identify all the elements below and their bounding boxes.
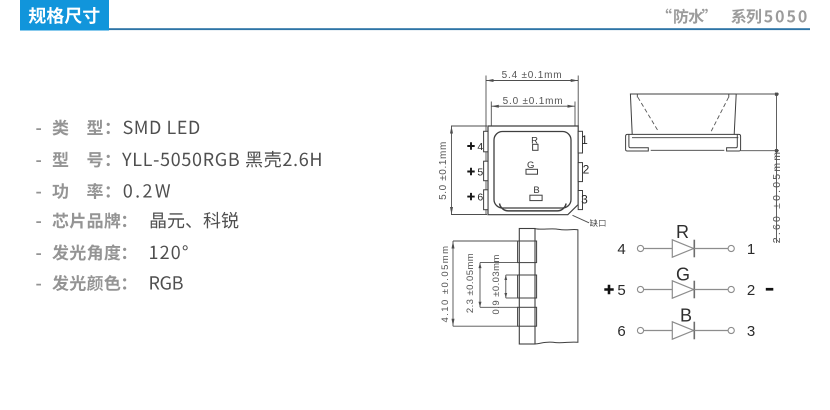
svg-text:6: 6 xyxy=(477,192,483,204)
svg-text:4: 4 xyxy=(617,241,625,258)
svg-text:3: 3 xyxy=(581,192,588,206)
svg-text:2: 2 xyxy=(583,163,590,177)
svg-text:1: 1 xyxy=(747,241,755,258)
svg-text:5: 5 xyxy=(617,282,625,299)
svg-text:5.0 ±0.1mm: 5.0 ±0.1mm xyxy=(503,96,564,107)
svg-text:4: 4 xyxy=(477,141,483,153)
svg-text:4.10 ±0.05mm: 4.10 ±0.05mm xyxy=(440,244,451,322)
svg-text:G: G xyxy=(676,265,690,285)
svg-text:3: 3 xyxy=(747,323,755,340)
svg-text:B: B xyxy=(533,185,539,196)
svg-text:B: B xyxy=(680,306,692,326)
svg-text:5: 5 xyxy=(477,167,483,179)
svg-text:R: R xyxy=(676,222,689,242)
svg-text:5.4 ±0.1mm: 5.4 ±0.1mm xyxy=(502,70,563,81)
svg-text:2.3 ±0.05mm: 2.3 ±0.05mm xyxy=(465,253,476,313)
svg-text:1: 1 xyxy=(581,133,588,147)
svg-text:2.60 ±0.05mm: 2.60 ±0.05mm xyxy=(771,150,783,243)
svg-text:6: 6 xyxy=(617,323,625,340)
svg-text:2: 2 xyxy=(747,282,755,299)
svg-text:5.0 ±0.1mm: 5.0 ±0.1mm xyxy=(438,141,449,200)
svg-text:0.9 ±0.03mm: 0.9 ±0.03mm xyxy=(491,254,502,314)
